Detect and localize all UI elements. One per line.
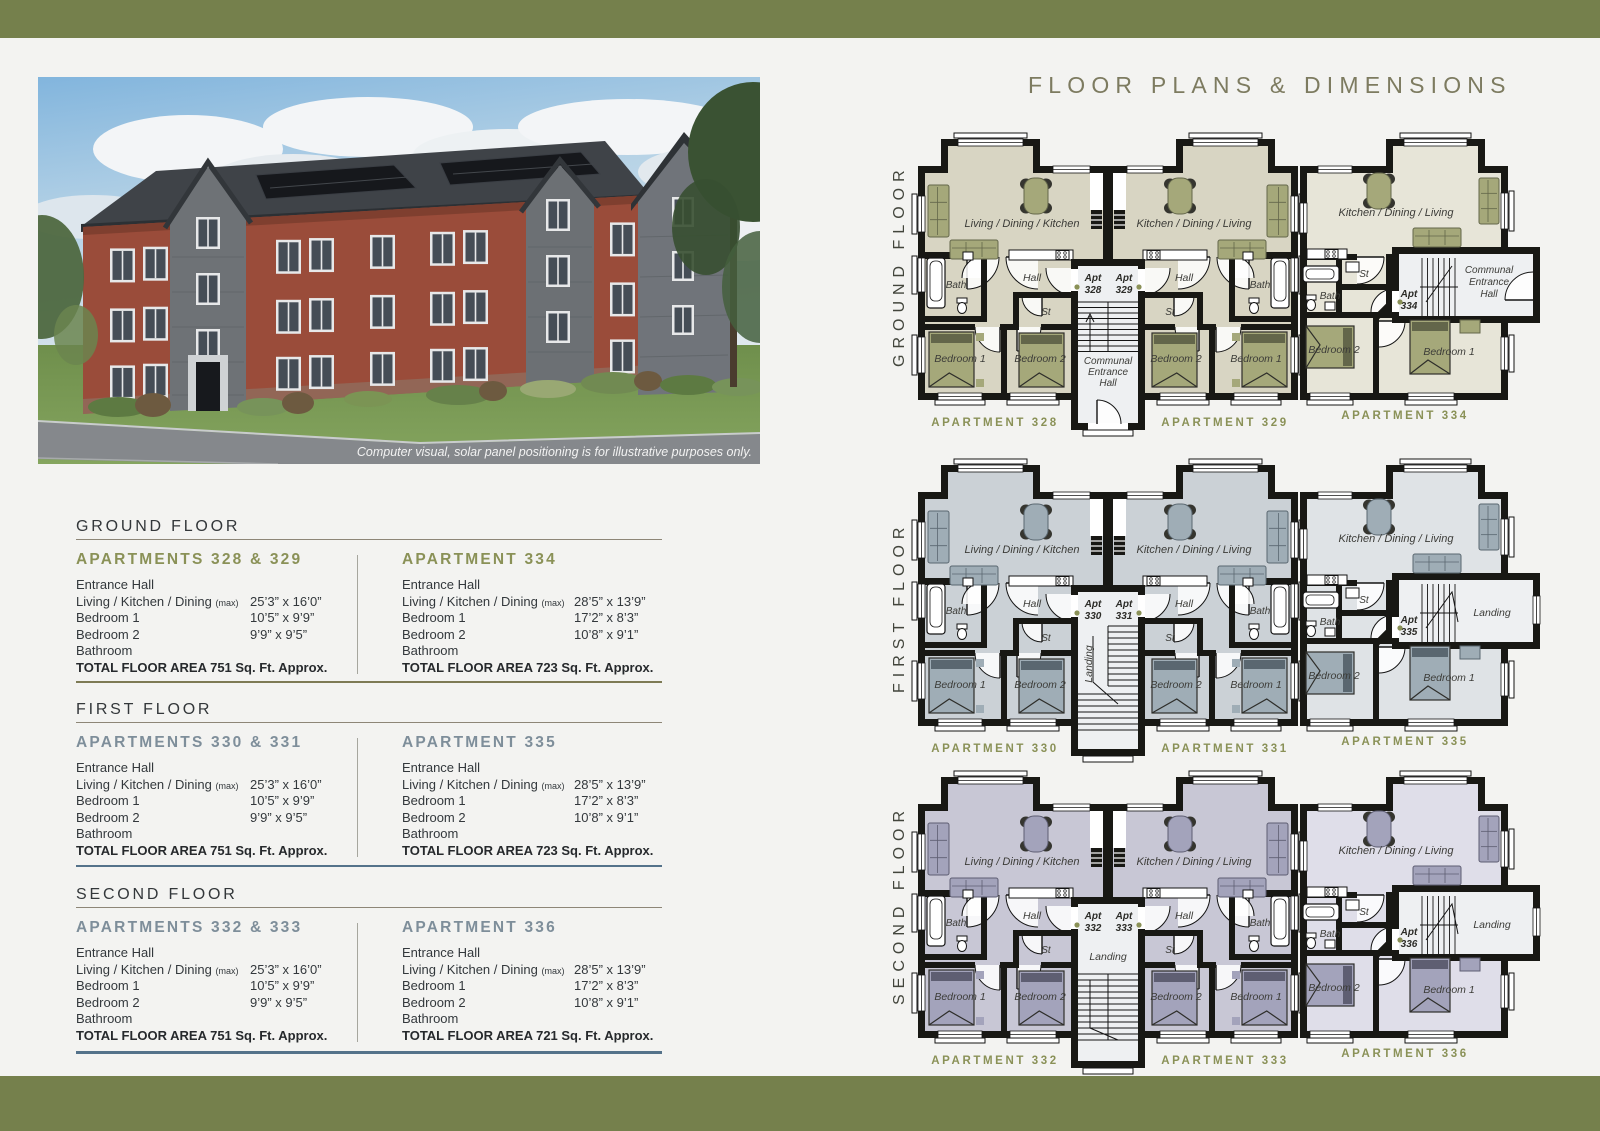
svg-text:Kitchen / Dining / Living: Kitchen / Dining / Living xyxy=(1137,544,1253,556)
svg-text:329: 329 xyxy=(1116,285,1133,296)
svg-text:St: St xyxy=(1165,945,1176,956)
svg-text:Bath: Bath xyxy=(1250,606,1271,617)
svg-text:Bedroom 2: Bedroom 2 xyxy=(1014,679,1066,691)
svg-text:Kitchen / Dining / Living: Kitchen / Dining / Living xyxy=(1137,856,1253,868)
svg-text:Hall: Hall xyxy=(1175,910,1194,922)
svg-text:Hall: Hall xyxy=(1023,272,1042,284)
svg-text:Bedroom 1: Bedroom 1 xyxy=(1423,672,1474,684)
svg-text:Bath: Bath xyxy=(1250,280,1271,291)
svg-text:St: St xyxy=(1359,595,1370,606)
svg-text:Bedroom 1: Bedroom 1 xyxy=(934,991,985,1003)
svg-text:Entrance: Entrance xyxy=(1088,367,1128,378)
svg-text:Kitchen / Dining / Living: Kitchen / Dining / Living xyxy=(1137,218,1253,230)
svg-text:St: St xyxy=(1041,633,1052,644)
svg-text:Bedroom 2: Bedroom 2 xyxy=(1014,991,1066,1003)
svg-text:St: St xyxy=(1165,307,1176,318)
svg-text:Hall: Hall xyxy=(1023,598,1042,610)
svg-text:Apt: Apt xyxy=(1084,273,1102,284)
svg-text:Living / Dining / Kitchen: Living / Dining / Kitchen xyxy=(965,218,1080,230)
svg-text:Entrance: Entrance xyxy=(1469,277,1509,288)
svg-text:Bath: Bath xyxy=(946,280,967,291)
svg-text:Apt: Apt xyxy=(1400,927,1418,938)
svg-text:Bedroom 2: Bedroom 2 xyxy=(1014,353,1066,365)
svg-text:Hall: Hall xyxy=(1175,272,1194,284)
svg-text:Landing: Landing xyxy=(1473,607,1511,619)
svg-text:Bedroom 1: Bedroom 1 xyxy=(1230,991,1281,1003)
svg-text:Bath: Bath xyxy=(1250,918,1271,929)
svg-text:336: 336 xyxy=(1401,939,1418,950)
svg-text:Apt: Apt xyxy=(1400,615,1418,626)
svg-text:Computer visual, solar panel p: Computer visual, solar panel positioning… xyxy=(357,445,752,459)
svg-text:St: St xyxy=(1359,269,1370,280)
svg-text:335: 335 xyxy=(1401,627,1418,638)
svg-text:Bedroom 2: Bedroom 2 xyxy=(1150,679,1202,691)
svg-text:328: 328 xyxy=(1085,285,1102,296)
svg-text:Living / Dining / Kitchen: Living / Dining / Kitchen xyxy=(965,856,1080,868)
svg-text:Bedroom 1: Bedroom 1 xyxy=(1423,984,1474,996)
svg-text:333: 333 xyxy=(1116,923,1133,934)
svg-text:Apt: Apt xyxy=(1400,289,1418,300)
svg-text:Bedroom 1: Bedroom 1 xyxy=(1423,346,1474,358)
svg-text:334: 334 xyxy=(1401,301,1418,312)
svg-text:Hall: Hall xyxy=(1023,910,1042,922)
svg-text:330: 330 xyxy=(1085,611,1102,622)
svg-text:Bedroom 2: Bedroom 2 xyxy=(1150,353,1202,365)
svg-text:Bedroom 1: Bedroom 1 xyxy=(934,679,985,691)
svg-text:Communal: Communal xyxy=(1084,356,1133,367)
svg-text:Communal: Communal xyxy=(1465,265,1514,276)
svg-text:Bedroom 1: Bedroom 1 xyxy=(934,353,985,365)
svg-text:Bedroom 1: Bedroom 1 xyxy=(1230,353,1281,365)
svg-text:Apt: Apt xyxy=(1084,599,1102,610)
svg-text:Bath: Bath xyxy=(946,918,967,929)
svg-text:Kitchen / Dining / Living: Kitchen / Dining / Living xyxy=(1339,533,1455,545)
svg-text:Living / Dining / Kitchen: Living / Dining / Kitchen xyxy=(965,544,1080,556)
svg-text:Apt: Apt xyxy=(1084,911,1102,922)
svg-text:Apt: Apt xyxy=(1115,273,1133,284)
svg-text:Hall: Hall xyxy=(1480,289,1498,300)
svg-text:St: St xyxy=(1359,907,1370,918)
svg-text:Bedroom 2: Bedroom 2 xyxy=(1308,982,1360,994)
svg-text:Apt: Apt xyxy=(1115,599,1133,610)
svg-text:Bedroom 2: Bedroom 2 xyxy=(1308,344,1360,356)
svg-text:Hall: Hall xyxy=(1175,598,1194,610)
svg-text:Bedroom 1: Bedroom 1 xyxy=(1230,679,1281,691)
svg-text:Bath: Bath xyxy=(1320,291,1341,302)
svg-text:Apt: Apt xyxy=(1115,911,1133,922)
svg-text:St: St xyxy=(1165,633,1176,644)
svg-text:Kitchen / Dining / Living: Kitchen / Dining / Living xyxy=(1339,845,1455,857)
svg-text:Bath: Bath xyxy=(1320,617,1341,628)
svg-text:Hall: Hall xyxy=(1099,378,1117,389)
svg-text:Kitchen / Dining / Living: Kitchen / Dining / Living xyxy=(1339,207,1455,219)
svg-text:Landing: Landing xyxy=(1089,951,1127,963)
svg-text:Bath: Bath xyxy=(946,606,967,617)
svg-text:Bedroom 2: Bedroom 2 xyxy=(1308,670,1360,682)
svg-text:Bath: Bath xyxy=(1320,929,1341,940)
svg-text:Bedroom 2: Bedroom 2 xyxy=(1150,991,1202,1003)
svg-text:St: St xyxy=(1041,945,1052,956)
svg-text:332: 332 xyxy=(1085,923,1102,934)
svg-text:St: St xyxy=(1041,307,1052,318)
svg-text:Landing: Landing xyxy=(1083,645,1095,683)
svg-text:Landing: Landing xyxy=(1473,919,1511,931)
svg-text:331: 331 xyxy=(1116,611,1133,622)
